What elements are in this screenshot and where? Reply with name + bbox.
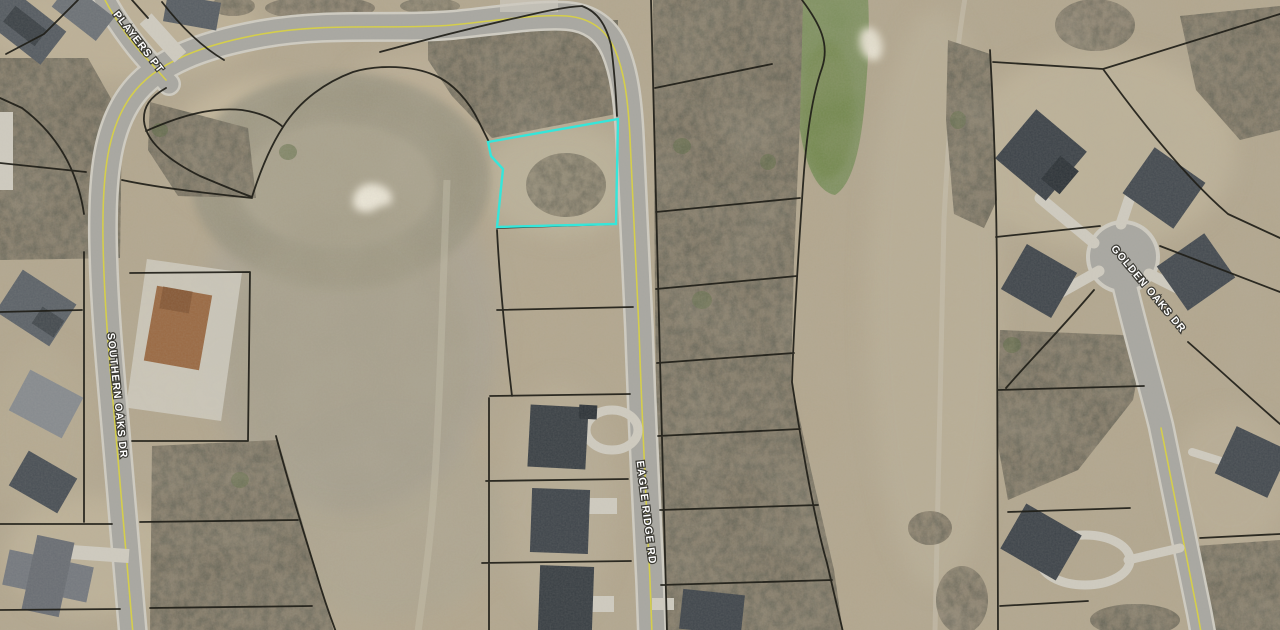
aerial-parcel-map[interactable]: PLAYERS PT SOUTHERN OAKS DR EAGLE RIDGE … xyxy=(0,0,1280,630)
map-canvas[interactable]: PLAYERS PT SOUTHERN OAKS DR EAGLE RIDGE … xyxy=(0,0,1280,630)
photo-grain xyxy=(0,0,1280,630)
